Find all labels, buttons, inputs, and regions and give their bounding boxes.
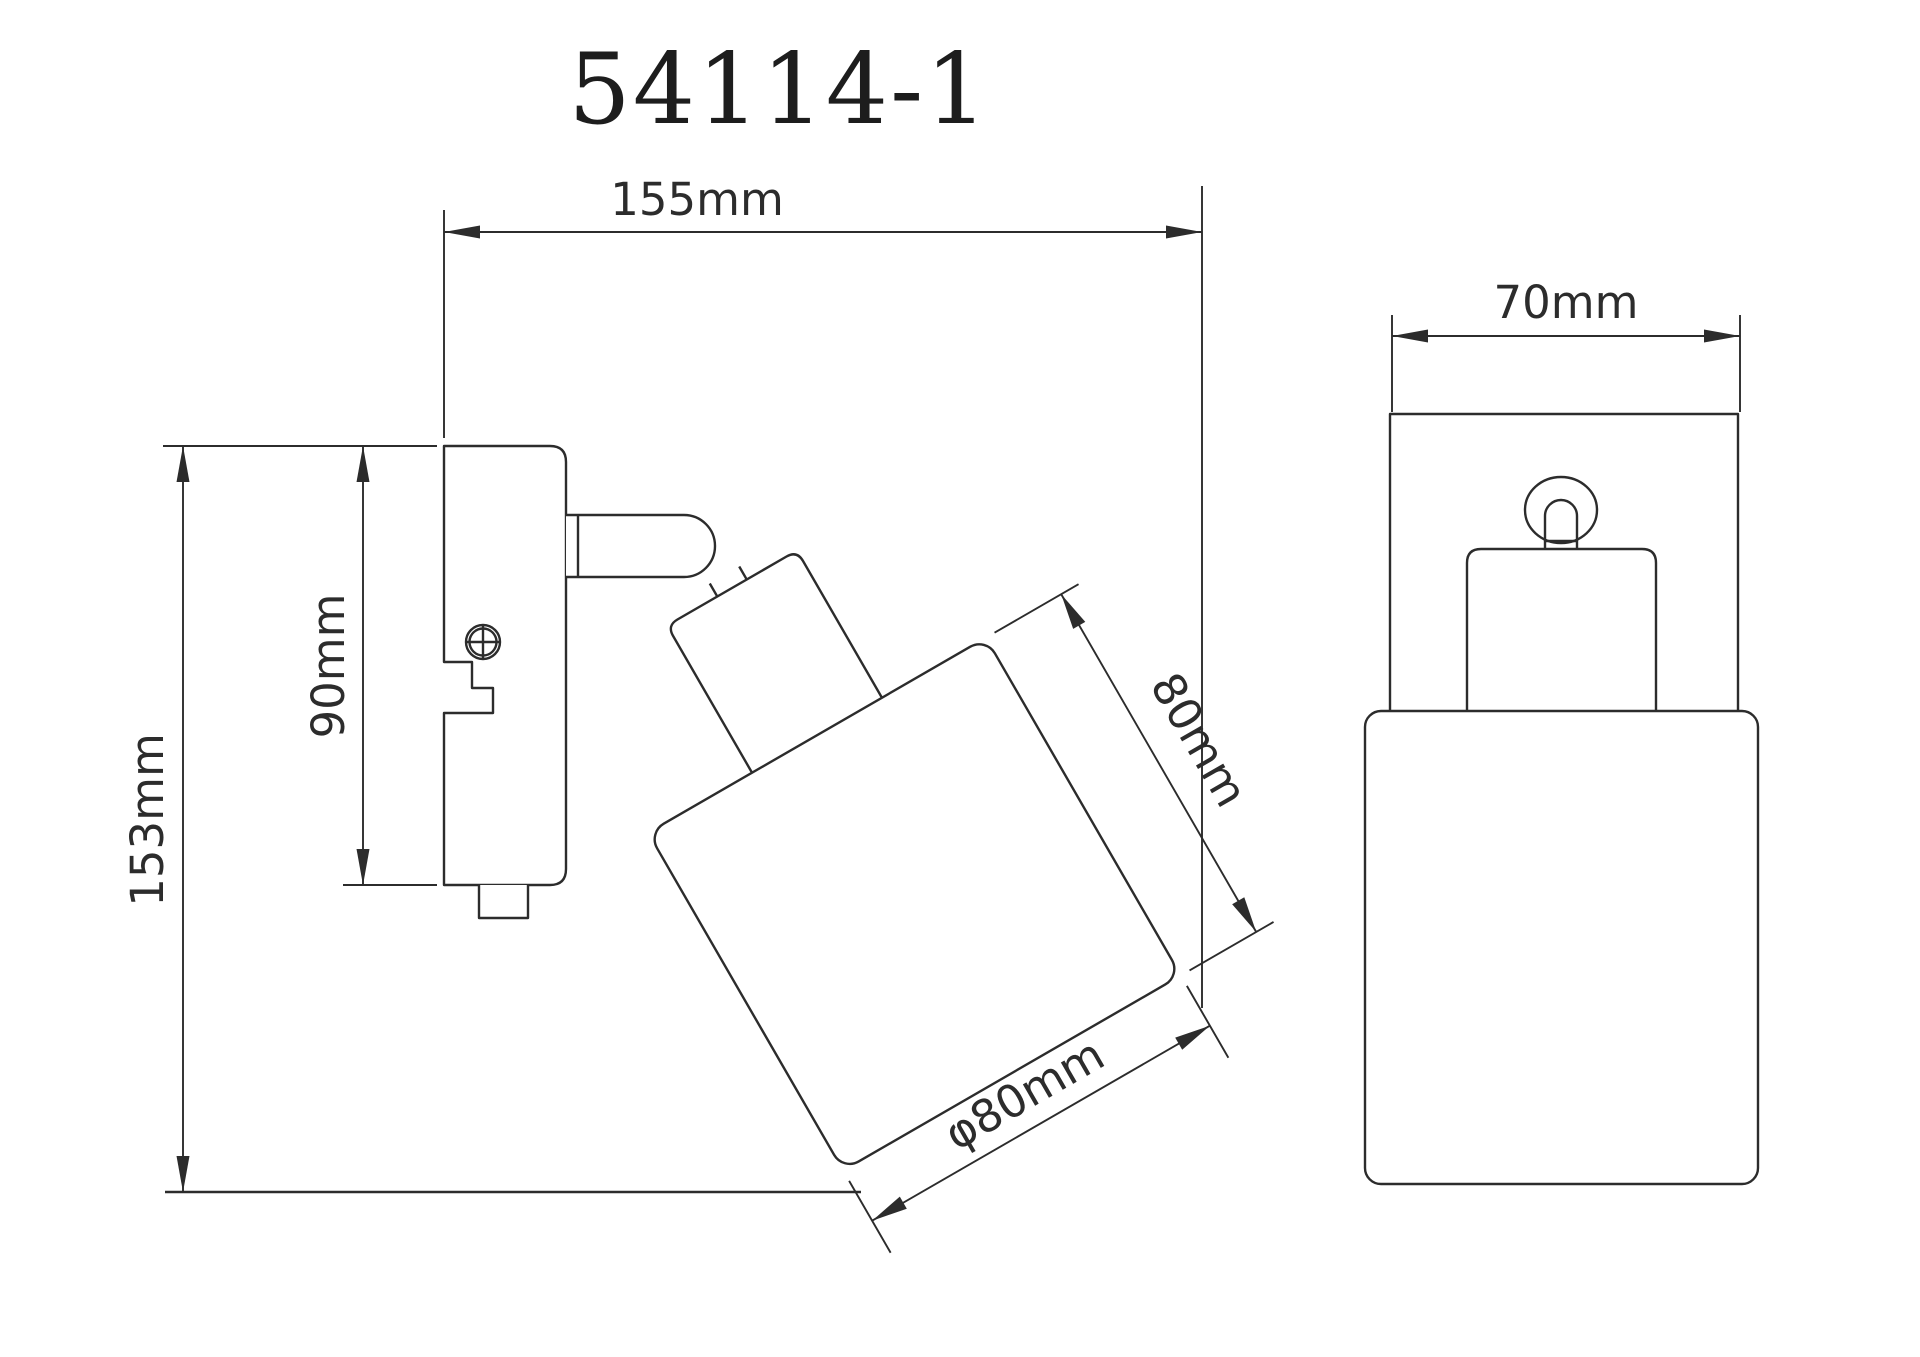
shade-front <box>1365 711 1758 1184</box>
dimension-label-total-height: 153mm <box>121 733 174 907</box>
technical-drawing-svg: 54114-1 80mm <box>0 0 1920 1357</box>
dimension-backplate-height: 90mm <box>302 446 437 885</box>
drawing-sheet: 54114-1 80mm <box>0 0 1920 1357</box>
dimension-label-front-width: 70mm <box>1494 276 1639 329</box>
dimension-label-total-width: 155mm <box>610 173 784 226</box>
lamp-holder-front <box>1467 549 1656 711</box>
dimension-total-height: 153mm <box>121 446 190 1192</box>
dimension-label-backplate-height: 90mm <box>302 594 355 739</box>
front-view: 70mm <box>1365 276 1758 1184</box>
keyhole-slot <box>1525 477 1597 549</box>
switch-knob <box>479 885 528 918</box>
model-number-title: 54114-1 <box>568 33 989 147</box>
backplate-side <box>444 446 566 885</box>
dimension-label-shade-length: 80mm <box>1140 664 1258 816</box>
screw-icon <box>466 625 500 659</box>
dimension-front-width: 70mm <box>1392 276 1740 412</box>
side-view: 80mm φ80mm 155mm <box>121 173 1367 1253</box>
pivot-arm <box>566 515 715 577</box>
